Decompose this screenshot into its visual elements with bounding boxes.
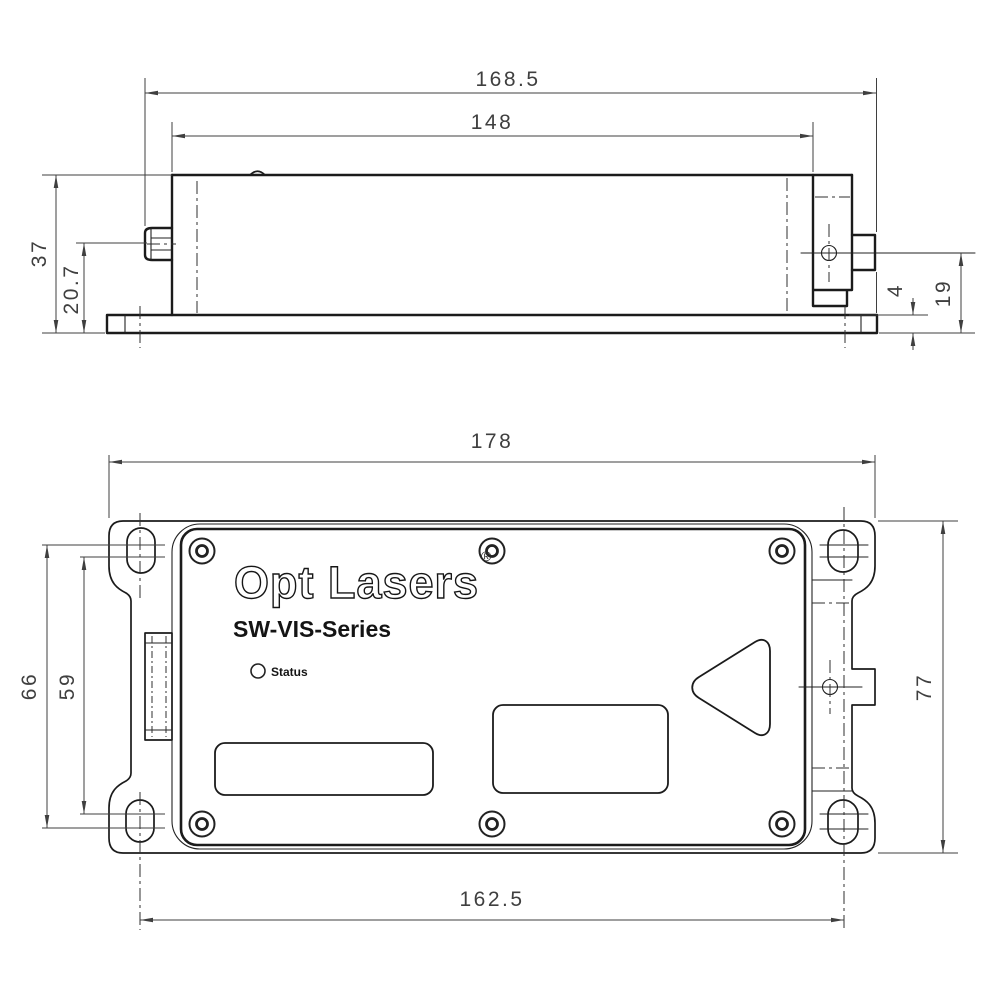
registered-trademark-icon: ®	[481, 548, 492, 564]
brand-logo: Opt Lasers	[234, 557, 479, 608]
dim-label-slot-span-outer: 66	[18, 672, 41, 700]
dim-label-base-thickness: 4	[884, 283, 907, 297]
laser-module-drawing: 168.5 148 37 20.7 4 19	[0, 0, 1000, 1000]
technical-drawing-page: 168.5 148 37 20.7 4 19	[0, 0, 1000, 1000]
status-led-label: Status	[271, 665, 308, 679]
dim-label-overall-length: 168.5	[475, 68, 540, 91]
dim-label-beam-axis-height: 19	[932, 279, 955, 307]
drawing-background	[0, 0, 1000, 1000]
dim-label-overall-width: 77	[913, 673, 936, 701]
series-label: SW-VIS-Series	[233, 616, 391, 642]
dim-label-overall-length-top: 178	[471, 430, 514, 453]
dim-label-connector-axis-height: 20.7	[60, 264, 83, 315]
dim-label-slot-span-inner: 59	[56, 672, 79, 700]
dim-label-overall-height: 37	[28, 239, 51, 267]
dim-label-housing-length: 148	[471, 111, 514, 134]
dim-label-mounting-slot-spacing: 162.5	[459, 888, 524, 911]
